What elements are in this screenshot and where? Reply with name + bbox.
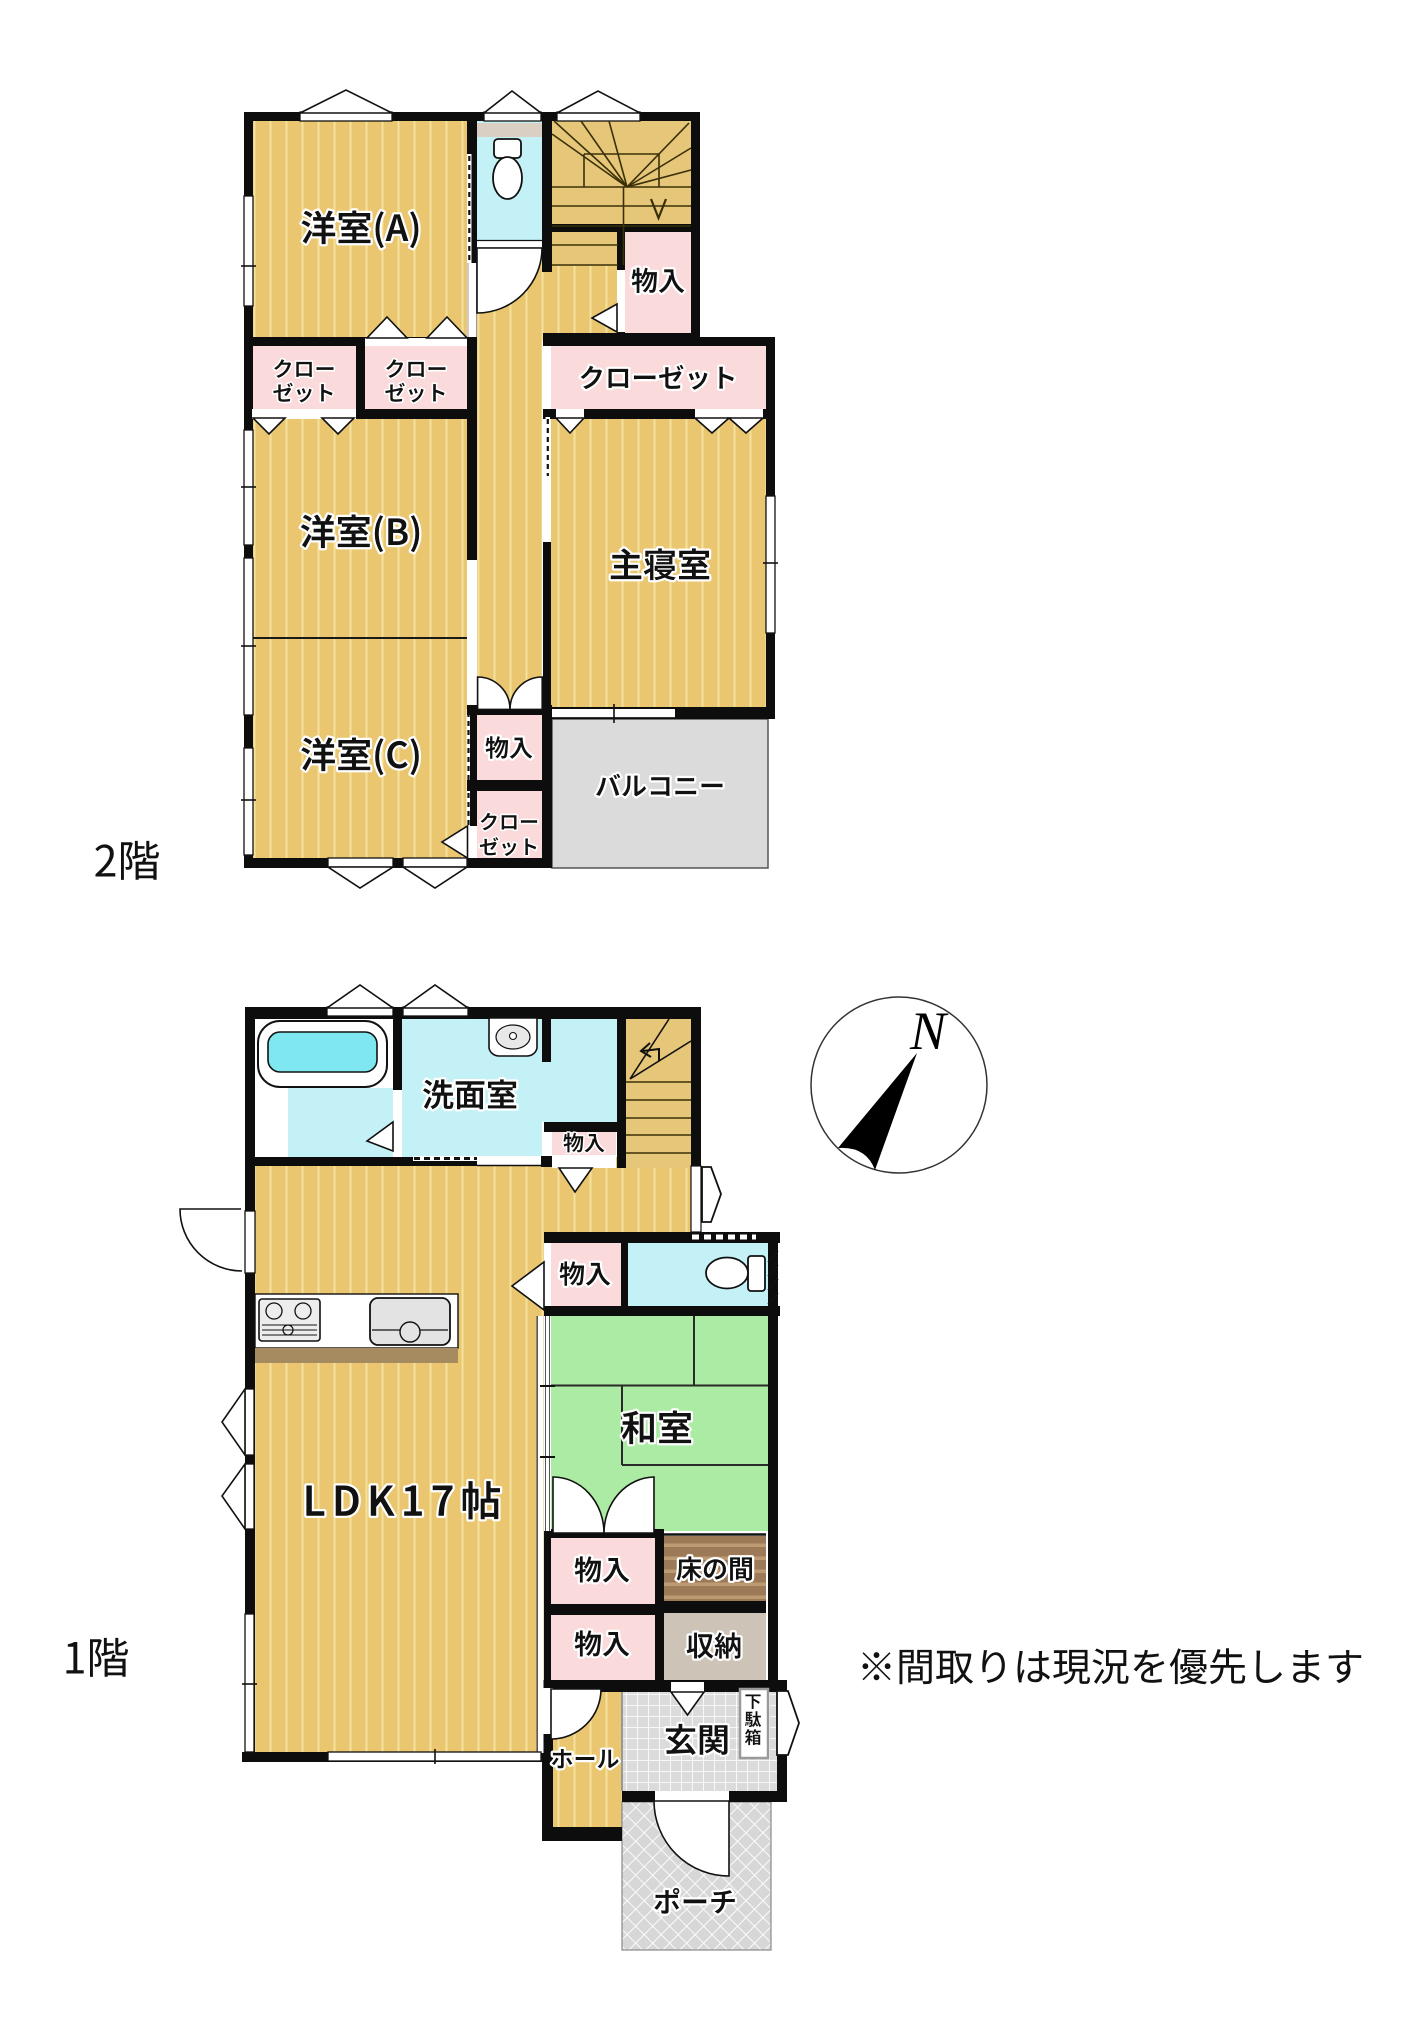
svg-text:N: N [909,1001,949,1061]
